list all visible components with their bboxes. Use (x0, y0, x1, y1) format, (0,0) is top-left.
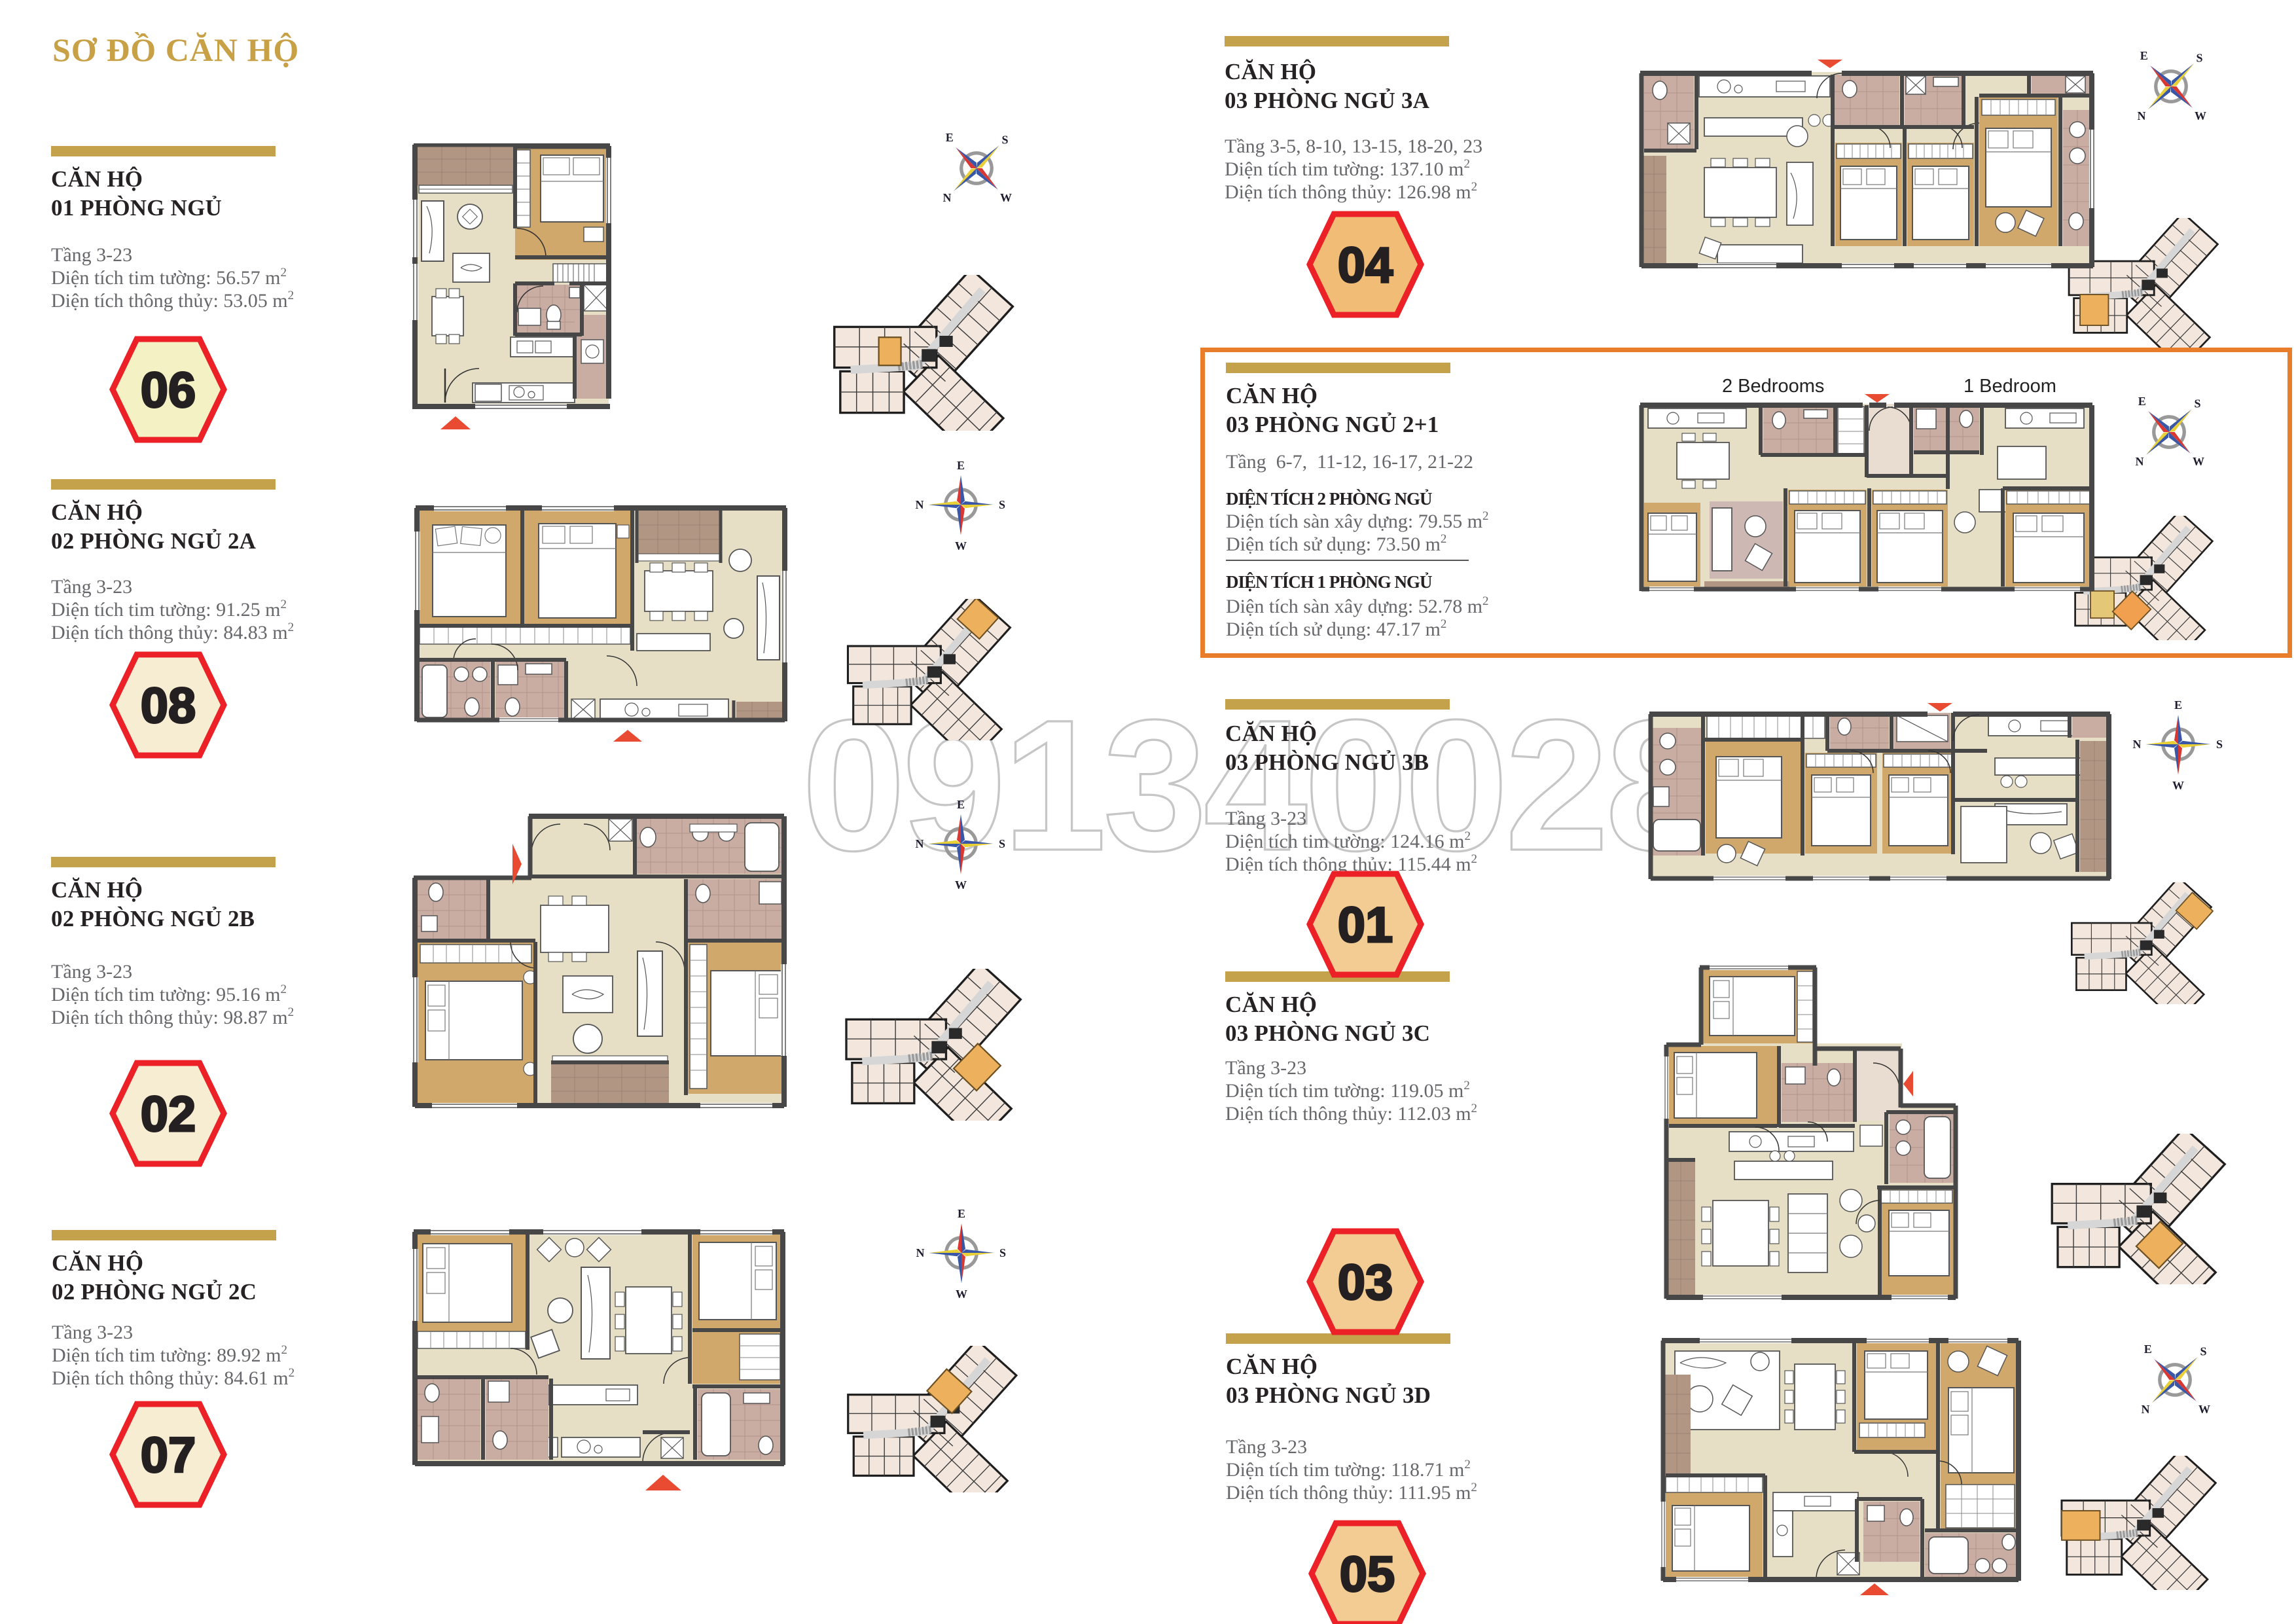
svg-text:03: 03 (1338, 1255, 1393, 1310)
svg-text:02: 02 (141, 1087, 196, 1142)
svg-text:01: 01 (1338, 897, 1393, 953)
svg-text:04: 04 (1338, 238, 1393, 293)
svg-text:08: 08 (141, 678, 196, 734)
svg-text:06: 06 (141, 363, 196, 418)
svg-text:05: 05 (1340, 1547, 1395, 1602)
svg-text:07: 07 (141, 1428, 196, 1483)
